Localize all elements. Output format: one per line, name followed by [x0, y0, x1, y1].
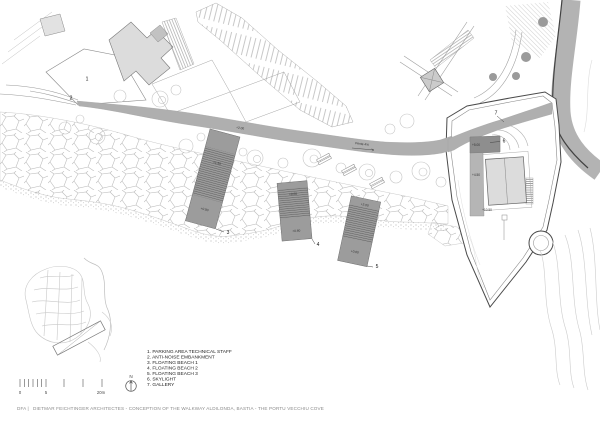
- site-plan-canvas: +1.50 +0.90 +0.60 +0.60 +2.00 +0.60: [0, 0, 600, 424]
- marker-3-beach1: 3: [227, 230, 230, 236]
- beach2-top-level: +0.60: [289, 192, 298, 197]
- marker-2-embankment: 2: [70, 96, 73, 102]
- marker-1-parking: 1: [86, 77, 89, 83]
- legend-item-2: 2. ANTI-NOISE EMBANKMENT: [147, 355, 215, 361]
- legend-item-1: 1. PARKING AREA TECHNICAL STAFF: [147, 349, 232, 355]
- beach2-platform-level: +0.60: [292, 228, 301, 233]
- caption-firm: DFA |: [17, 406, 29, 411]
- marker-6-skylight: 6: [503, 139, 506, 145]
- marker-7-gallery: 7: [495, 111, 498, 117]
- coast-road: [561, 0, 600, 172]
- site-plan-sheet: +1.50 +0.90 +0.60 +0.60 +2.00 +0.60: [0, 0, 600, 424]
- tree-dot: [521, 52, 531, 62]
- legend-item-3: 3. FLOATING BEACH 1: [147, 360, 198, 366]
- project-area-marker: [53, 321, 105, 355]
- caption: DFA | DIETMAR FEICHTINGER ARCHITECTES - …: [17, 406, 324, 411]
- north-label: N: [129, 374, 132, 379]
- scale-label-end: 20m: [97, 390, 106, 395]
- legend-item-5: 5. FLOATING BEACH 3: [147, 371, 198, 377]
- north-arrow: N: [126, 374, 137, 391]
- round-bastion: [529, 231, 553, 255]
- scale-label-mid: 5: [45, 390, 48, 395]
- floating-beach-2: +0.60 +0.60: [277, 181, 312, 241]
- stairs-band: [430, 30, 474, 68]
- tree-dot: [512, 72, 520, 80]
- tree-dot: [538, 17, 548, 27]
- small-building: [40, 14, 65, 36]
- location-map: [25, 258, 111, 362]
- skylight-level-label: +5.00: [472, 143, 480, 147]
- caption-title: DIETMAR FEICHTINGER ARCHITECTES - CONCEP…: [33, 406, 324, 411]
- north-needle: [130, 381, 133, 391]
- legend-item-6: 6. SKYLIGHT: [147, 377, 176, 383]
- slope-hatching: [505, 2, 556, 58]
- scale-ticks: [20, 379, 102, 387]
- marker-4-beach2: 4: [317, 242, 320, 248]
- legend-item-7: 7. GALLERY: [147, 382, 175, 388]
- scale-bar: 0 5 20m: [19, 379, 106, 395]
- tree-dot: [489, 73, 497, 81]
- legend-item-4: 4. FLOATING BEACH 2: [147, 366, 198, 372]
- marker-5-beach3: 5: [376, 264, 379, 270]
- fort-stairs: [526, 178, 533, 204]
- gallery-level-label: +4.50: [472, 173, 480, 177]
- fort-court-level-label: +10.50: [482, 208, 492, 212]
- legend: 1. PARKING AREA TECHNICAL STAFF 2. ANTI-…: [147, 349, 232, 388]
- mast-base: [502, 215, 507, 220]
- scale-label-start: 0: [19, 390, 22, 395]
- terrain-line: [584, 60, 592, 132]
